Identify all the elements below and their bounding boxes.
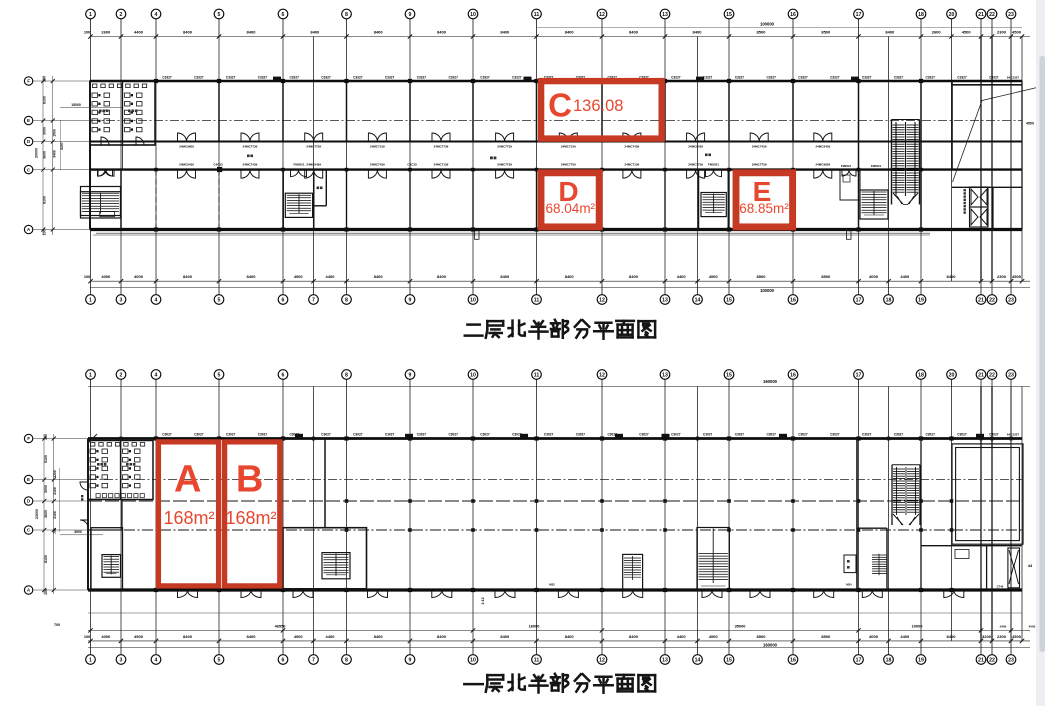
svg-text:1: 1: [89, 372, 92, 378]
svg-text:4000: 4000: [294, 634, 304, 639]
svg-text:16: 16: [790, 12, 796, 18]
svg-text:8400: 8400: [500, 30, 510, 35]
svg-text:7: 7: [312, 657, 315, 663]
svg-text:4000: 4000: [869, 274, 879, 279]
svg-text:3: 3: [120, 297, 123, 303]
svg-text:C3027: C3027: [226, 433, 236, 437]
svg-text:8400: 8400: [247, 30, 257, 35]
svg-text:C3327: C3327: [798, 75, 808, 79]
svg-text:8500: 8500: [821, 30, 831, 35]
svg-text:23: 23: [1008, 372, 1014, 378]
svg-text:4500: 4500: [134, 634, 144, 639]
svg-text:C3327: C3327: [480, 75, 490, 79]
svg-text:C3327: C3327: [957, 75, 967, 79]
svg-text:FM2021: FM2021: [871, 164, 882, 168]
svg-text:4400: 4400: [900, 634, 910, 639]
svg-text:19: 19: [918, 297, 924, 303]
svg-text:2300: 2300: [997, 30, 1007, 35]
svg-text:17: 17: [856, 372, 862, 378]
svg-text:3600: 3600: [43, 151, 47, 159]
svg-text:24MC7139: 24MC7139: [370, 145, 385, 149]
svg-text:A: A: [174, 459, 201, 501]
svg-text:100000: 100000: [760, 22, 775, 27]
svg-text:8500: 8500: [821, 634, 831, 639]
svg-text:100: 100: [84, 635, 90, 639]
svg-text:C3027: C3027: [448, 433, 458, 437]
svg-text:17: 17: [856, 657, 862, 663]
svg-text:24MC7739: 24MC7739: [497, 145, 512, 149]
svg-text:9: 9: [409, 657, 412, 663]
svg-text:4400: 4400: [326, 274, 336, 279]
svg-text:18: 18: [886, 657, 892, 663]
svg-text:24MC9439: 24MC9439: [688, 145, 703, 149]
svg-text:4000: 4000: [294, 274, 304, 279]
svg-text:3600: 3600: [44, 510, 48, 518]
svg-text:6: 6: [282, 297, 285, 303]
svg-text:F: F: [27, 79, 30, 84]
svg-text:20: 20: [949, 12, 955, 18]
svg-text:22: 22: [989, 657, 995, 663]
svg-text:C3027: C3027: [162, 433, 172, 437]
svg-text:8400: 8400: [247, 274, 257, 279]
svg-text:FM2021: FM2021: [293, 162, 304, 166]
svg-text:8400: 8400: [565, 634, 575, 639]
svg-text:3000: 3000: [43, 127, 47, 135]
svg-text:44: 44: [1028, 563, 1033, 568]
svg-text:4000: 4000: [709, 634, 719, 639]
svg-text:C3327: C3327: [703, 75, 713, 79]
svg-text:1: 1: [89, 657, 92, 663]
svg-text:C3027: C3027: [353, 433, 363, 437]
svg-text:C3027: C3027: [735, 433, 745, 437]
svg-text:168m²: 168m²: [225, 508, 276, 528]
svg-text:10: 10: [470, 12, 476, 18]
svg-text:19: 19: [918, 657, 924, 663]
svg-text:C3327: C3327: [258, 75, 268, 79]
svg-text:23: 23: [1008, 657, 1014, 663]
svg-text:700: 700: [54, 623, 60, 627]
svg-text:8500: 8500: [757, 274, 767, 279]
svg-text:11: 11: [534, 12, 540, 18]
svg-text:136.08: 136.08: [573, 97, 623, 115]
svg-text:64C3327: 64C3327: [1007, 433, 1020, 437]
svg-text:23: 23: [1008, 297, 1014, 303]
svg-text:8400: 8400: [374, 274, 384, 279]
svg-text:C3027: C3027: [925, 433, 935, 437]
svg-text:C3027: C3027: [798, 433, 808, 437]
svg-text:15: 15: [726, 657, 732, 663]
svg-text:C3327: C3327: [194, 75, 204, 79]
svg-text:C740: C740: [997, 585, 1004, 589]
svg-text:24MC9439: 24MC9439: [815, 145, 830, 149]
svg-text:8: 8: [345, 297, 348, 303]
svg-text:100: 100: [84, 275, 90, 279]
svg-text:1500: 1500: [53, 129, 57, 137]
svg-text:8: 8: [345, 12, 348, 18]
svg-text:8400: 8400: [437, 274, 447, 279]
svg-text:3000: 3000: [44, 485, 48, 493]
svg-text:C3027: C3027: [544, 433, 554, 437]
svg-text:10: 10: [470, 657, 476, 663]
svg-text:24MC7739: 24MC7739: [434, 145, 449, 149]
svg-text:1200: 1200: [53, 470, 57, 478]
svg-text:2400: 2400: [1000, 624, 1007, 628]
svg-text:4: 4: [155, 372, 158, 378]
svg-text:C3327: C3327: [862, 75, 872, 79]
svg-text:C3327: C3327: [830, 75, 840, 79]
svg-text:17: 17: [856, 297, 862, 303]
svg-text:FM2021: FM2021: [841, 164, 852, 168]
svg-text:12: 12: [599, 372, 605, 378]
svg-text:8500: 8500: [757, 634, 767, 639]
svg-text:14: 14: [695, 297, 701, 303]
svg-text:8: 8: [345, 657, 348, 663]
svg-text:68.85m²: 68.85m²: [739, 201, 789, 216]
svg-text:8400: 8400: [183, 274, 193, 279]
svg-text:C3327: C3327: [162, 75, 172, 79]
svg-text:68.04m²: 68.04m²: [546, 201, 596, 216]
svg-text:15: 15: [726, 372, 732, 378]
svg-text:C3027: C3027: [894, 433, 904, 437]
svg-text:18: 18: [886, 297, 892, 303]
svg-text:8400: 8400: [437, 30, 447, 35]
svg-text:C3027: C3027: [639, 433, 649, 437]
svg-text:1:12: 1:12: [481, 597, 485, 604]
svg-text:8400: 8400: [183, 30, 193, 35]
svg-text:6: 6: [282, 657, 285, 663]
svg-text:11: 11: [534, 297, 540, 303]
svg-text:5100: 5100: [44, 455, 48, 463]
svg-text:24MC7739: 24MC7739: [688, 162, 703, 166]
svg-text:3: 3: [120, 657, 123, 663]
svg-text:21: 21: [978, 297, 984, 303]
svg-text:24MC7739: 24MC7739: [561, 162, 576, 166]
svg-text:16: 16: [790, 297, 796, 303]
svg-text:8400: 8400: [374, 30, 384, 35]
svg-text:24MC9439: 24MC9439: [179, 162, 194, 166]
svg-text:C3327: C3327: [226, 75, 236, 79]
svg-text:13: 13: [662, 297, 668, 303]
svg-text:24MC7439: 24MC7439: [752, 145, 767, 149]
svg-text:2100: 2100: [53, 487, 57, 495]
svg-text:3400: 3400: [53, 150, 57, 158]
svg-text:21: 21: [978, 657, 984, 663]
svg-text:9: 9: [409, 297, 412, 303]
svg-text:100: 100: [84, 31, 90, 35]
svg-text:2100: 2100: [53, 511, 57, 519]
svg-text:8500: 8500: [757, 30, 767, 35]
svg-text:4000: 4000: [101, 274, 111, 279]
svg-text:8400: 8400: [565, 30, 575, 35]
svg-text:8400: 8400: [947, 274, 957, 279]
svg-text:100: 100: [43, 76, 47, 82]
svg-text:4: 4: [155, 657, 158, 663]
svg-text:C3027: C3027: [576, 433, 586, 437]
svg-text:4000: 4000: [709, 274, 719, 279]
svg-text:F: F: [27, 436, 30, 441]
svg-text:C3027: C3027: [385, 433, 395, 437]
svg-text:C3C33: C3C33: [407, 162, 417, 166]
svg-text:7: 7: [312, 297, 315, 303]
svg-text:24MC7439: 24MC7439: [625, 145, 640, 149]
svg-text:M24: M24: [846, 583, 852, 587]
svg-text:15: 15: [726, 12, 732, 18]
svg-text:24MC9859: 24MC9859: [815, 162, 830, 166]
svg-text:8100: 8100: [44, 555, 48, 563]
svg-text:1: 1: [89, 297, 92, 303]
svg-text:24MC7139: 24MC7139: [625, 162, 640, 166]
svg-text:2: 2: [120, 12, 123, 18]
svg-text:24MC7739: 24MC7739: [497, 162, 512, 166]
svg-text:8: 8: [345, 372, 348, 378]
svg-text:8400: 8400: [247, 634, 257, 639]
svg-text:C4C33: C4C33: [213, 162, 223, 166]
svg-text:750: 750: [53, 528, 57, 534]
svg-text:18: 18: [918, 372, 924, 378]
svg-text:B: B: [236, 459, 263, 501]
svg-text:8400: 8400: [500, 634, 510, 639]
svg-text:23: 23: [1008, 12, 1014, 18]
svg-text:10000: 10000: [912, 623, 923, 628]
svg-text:8100: 8100: [43, 96, 47, 104]
svg-text:8400: 8400: [437, 634, 447, 639]
svg-text:10: 10: [470, 297, 476, 303]
svg-text:2300: 2300: [997, 634, 1007, 639]
svg-text:2: 2: [120, 372, 123, 378]
svg-text:17: 17: [856, 12, 862, 18]
svg-text:24MC7739: 24MC7739: [752, 162, 767, 166]
svg-text:10: 10: [470, 372, 476, 378]
svg-text:C3027: C3027: [989, 433, 999, 437]
svg-text:C3327: C3327: [512, 75, 522, 79]
svg-text:4400: 4400: [677, 634, 687, 639]
svg-text:4500: 4500: [1012, 274, 1022, 279]
svg-text:C3027: C3027: [766, 433, 776, 437]
svg-text:16000: 16000: [529, 623, 540, 628]
svg-text:24MC7739: 24MC7739: [306, 145, 321, 149]
svg-text:11: 11: [534, 372, 540, 378]
svg-text:24MC7439: 24MC7439: [243, 162, 258, 166]
svg-text:4000: 4000: [101, 634, 111, 639]
svg-text:100000: 100000: [760, 288, 775, 293]
svg-text:2600: 2600: [932, 30, 942, 35]
svg-text:FM2021: FM2021: [708, 162, 719, 166]
svg-text:C: C: [548, 87, 572, 124]
svg-text:168m²: 168m²: [163, 508, 214, 528]
svg-text:5: 5: [218, 657, 221, 663]
svg-text:20000: 20000: [35, 148, 39, 158]
svg-text:4000: 4000: [869, 634, 879, 639]
svg-text:22: 22: [989, 297, 995, 303]
svg-text:13: 13: [662, 372, 668, 378]
svg-text:100: 100: [44, 589, 48, 595]
svg-text:C3327: C3327: [385, 75, 395, 79]
svg-text:100: 100: [44, 434, 48, 440]
svg-text:8400: 8400: [183, 634, 193, 639]
svg-text:C3027: C3027: [480, 433, 490, 437]
svg-text:3000: 3000: [74, 530, 82, 534]
svg-text:4500: 4500: [1029, 624, 1036, 628]
svg-text:C3327: C3327: [735, 75, 745, 79]
svg-text:8400: 8400: [629, 274, 639, 279]
svg-text:24MC7139: 24MC7139: [434, 162, 449, 166]
svg-text:21: 21: [978, 12, 984, 18]
svg-text:16: 16: [790, 372, 796, 378]
svg-text:C3327: C3327: [417, 75, 427, 79]
svg-text:6257: 6257: [60, 142, 64, 150]
svg-text:C3327: C3327: [989, 75, 999, 79]
svg-text:6: 6: [282, 12, 285, 18]
svg-text:C3327: C3327: [894, 75, 904, 79]
svg-text:2600: 2600: [101, 30, 111, 35]
svg-text:5: 5: [218, 372, 221, 378]
svg-text:8100: 8100: [43, 196, 47, 204]
svg-text:12: 12: [599, 297, 605, 303]
svg-text:C3027: C3027: [417, 433, 427, 437]
svg-text:64C3327: 64C3327: [1007, 75, 1020, 79]
svg-text:20: 20: [949, 372, 955, 378]
svg-text:E: E: [27, 477, 30, 482]
svg-text:100: 100: [43, 230, 47, 236]
svg-text:4400: 4400: [677, 274, 687, 279]
svg-text:23000: 23000: [35, 509, 39, 519]
svg-text:8400: 8400: [947, 634, 957, 639]
svg-text:8400: 8400: [629, 634, 639, 639]
svg-text:8500: 8500: [821, 274, 831, 279]
svg-text:C3027: C3027: [671, 433, 681, 437]
svg-text:8400: 8400: [374, 634, 384, 639]
svg-text:13: 13: [662, 12, 668, 18]
svg-text:4500: 4500: [1026, 122, 1034, 126]
svg-text:12: 12: [599, 12, 605, 18]
svg-text:4000: 4000: [134, 274, 144, 279]
svg-text:24MC7739: 24MC7739: [243, 145, 258, 149]
svg-text:C3327: C3327: [671, 75, 681, 79]
svg-text:4500: 4500: [962, 30, 972, 35]
svg-text:24MC7439: 24MC7439: [370, 162, 385, 166]
svg-text:C3327: C3327: [766, 75, 776, 79]
svg-text:C3027: C3027: [194, 433, 204, 437]
svg-text:8400: 8400: [310, 30, 320, 35]
svg-text:2300: 2300: [997, 274, 1007, 279]
svg-text:M22: M22: [549, 583, 555, 587]
svg-text:21: 21: [978, 372, 984, 378]
svg-text:22: 22: [989, 12, 995, 18]
svg-text:46550: 46550: [275, 623, 286, 628]
svg-text:8400: 8400: [693, 30, 703, 35]
svg-text:C3327: C3327: [448, 75, 458, 79]
svg-text:24MC9859: 24MC9859: [179, 145, 194, 149]
svg-text:5: 5: [218, 12, 221, 18]
svg-text:4500: 4500: [1012, 634, 1022, 639]
svg-text:35000: 35000: [735, 623, 746, 628]
svg-text:C3027: C3027: [321, 433, 331, 437]
svg-text:9: 9: [409, 372, 412, 378]
svg-text:13: 13: [662, 657, 668, 663]
svg-text:12: 12: [599, 657, 605, 663]
svg-text:24MC7139: 24MC7139: [561, 145, 576, 149]
svg-text:C3327: C3327: [925, 75, 935, 79]
svg-text:18: 18: [918, 12, 924, 18]
svg-text:22: 22: [989, 372, 995, 378]
svg-text:C3027: C3027: [830, 433, 840, 437]
svg-text:4: 4: [155, 297, 158, 303]
svg-text:C3027: C3027: [862, 433, 872, 437]
svg-text:160000: 160000: [763, 643, 778, 648]
svg-text:5: 5: [218, 297, 221, 303]
svg-text:C3027: C3027: [957, 433, 967, 437]
svg-text:15: 15: [726, 297, 732, 303]
svg-text:C3027: C3027: [703, 433, 713, 437]
svg-text:8400: 8400: [885, 30, 895, 35]
svg-text:4500: 4500: [1012, 30, 1022, 35]
svg-text:4400: 4400: [326, 634, 336, 639]
svg-text:8400: 8400: [500, 274, 510, 279]
svg-text:8400: 8400: [565, 274, 575, 279]
svg-text:14: 14: [695, 657, 701, 663]
svg-text:8400: 8400: [629, 30, 639, 35]
svg-text:24MC9439: 24MC9439: [306, 162, 321, 166]
svg-text:16: 16: [790, 657, 796, 663]
svg-text:1: 1: [89, 12, 92, 18]
svg-text:6: 6: [282, 372, 285, 378]
svg-text:4: 4: [155, 12, 158, 18]
svg-text:15000: 15000: [71, 103, 81, 107]
svg-text:C3327: C3327: [321, 75, 331, 79]
svg-text:C3327: C3327: [353, 75, 363, 79]
svg-text:9: 9: [409, 12, 412, 18]
svg-text:C3027: C3027: [258, 433, 268, 437]
svg-text:160000: 160000: [763, 379, 778, 384]
svg-text:4400: 4400: [134, 30, 144, 35]
svg-text:4400: 4400: [900, 274, 910, 279]
svg-text:E: E: [27, 118, 30, 123]
svg-text:C3327: C3327: [289, 75, 299, 79]
svg-text:3200: 3200: [982, 634, 992, 639]
svg-text:11: 11: [534, 657, 540, 663]
